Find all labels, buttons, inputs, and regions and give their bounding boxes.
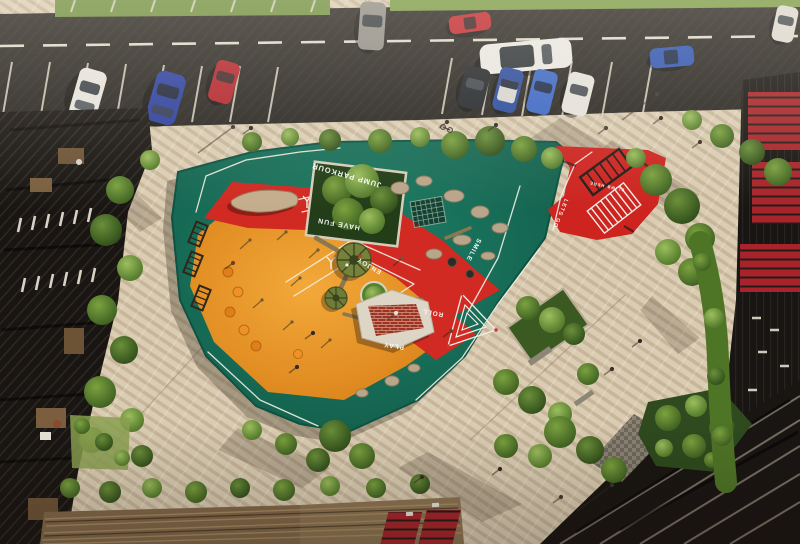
person (638, 339, 642, 343)
dome (225, 307, 235, 317)
person (394, 311, 398, 315)
tree (87, 295, 117, 325)
pole (260, 298, 263, 301)
carousel-hub (333, 295, 340, 302)
pole (316, 248, 319, 251)
person (295, 365, 299, 369)
tree (359, 208, 385, 234)
tree (493, 369, 519, 395)
person (610, 367, 614, 371)
boulder (492, 223, 508, 233)
pole (248, 238, 251, 241)
spiral-dot (494, 328, 497, 331)
tree (117, 255, 143, 281)
light-wash-top (0, 0, 800, 210)
tree (110, 336, 138, 364)
trampoline-mat (466, 270, 474, 278)
tree (518, 386, 546, 414)
tree (563, 323, 585, 345)
spiral-dot (460, 292, 463, 295)
pole (298, 276, 301, 279)
pole (284, 230, 287, 233)
dome (233, 287, 243, 297)
balcony (64, 328, 84, 354)
pole (328, 338, 331, 341)
tree (516, 296, 540, 320)
tree (84, 376, 116, 408)
tree (539, 307, 565, 333)
bush (707, 367, 725, 385)
shade-wash-bottom (0, 420, 800, 544)
bush (704, 308, 724, 328)
boulder (481, 252, 495, 260)
person (449, 329, 453, 333)
aerial-scene: LETS GO CLIMB HERE (0, 0, 800, 544)
child-figure (345, 263, 348, 266)
tree (577, 363, 599, 385)
boulder (453, 235, 471, 245)
boulder (426, 249, 442, 259)
dome (239, 325, 249, 335)
tree (90, 214, 122, 246)
pole (290, 320, 293, 323)
tree (655, 239, 681, 265)
dome (294, 350, 303, 359)
spiral-dot (446, 344, 449, 347)
boulder (408, 364, 420, 372)
dome (223, 267, 233, 277)
tree (685, 395, 707, 417)
boulder (356, 389, 368, 397)
person (231, 261, 235, 265)
trampoline-mat (448, 258, 457, 267)
person (311, 331, 315, 335)
bush (693, 253, 711, 271)
boulder (385, 376, 399, 386)
red-facade-block (740, 244, 800, 292)
dome (251, 341, 261, 351)
pole (400, 256, 403, 259)
